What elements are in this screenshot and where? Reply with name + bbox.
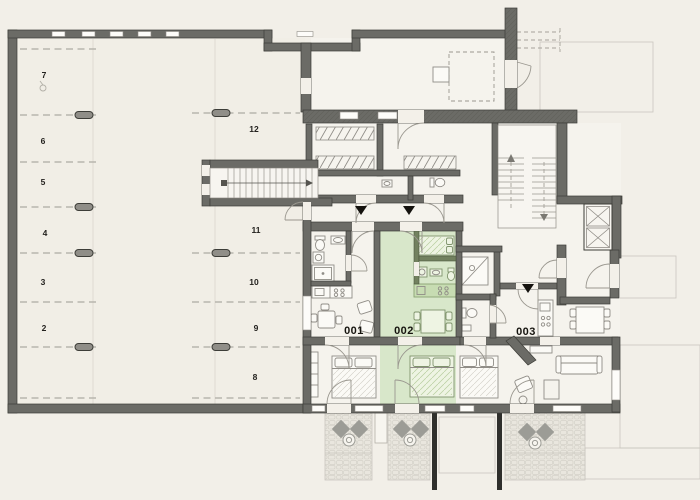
kitchen-counter-icon bbox=[312, 286, 352, 298]
shelf-rack bbox=[316, 127, 374, 140]
toilet-icon bbox=[462, 308, 477, 318]
main-staircase bbox=[210, 168, 318, 198]
single-bed-icon bbox=[418, 236, 454, 255]
parking-spot-7: 7 bbox=[42, 70, 47, 80]
shower-icon bbox=[312, 265, 334, 282]
parking-spot-10: 10 bbox=[249, 277, 259, 287]
wheel-stop bbox=[75, 250, 93, 257]
shelf-rack bbox=[316, 156, 374, 169]
parking-spot-9: 9 bbox=[254, 323, 259, 333]
dining-table-icon bbox=[570, 307, 610, 333]
double-bed-icon bbox=[460, 356, 498, 398]
terrace-002 bbox=[388, 413, 430, 480]
parking-spot-11: 11 bbox=[252, 225, 261, 235]
wheel-stop bbox=[212, 250, 230, 257]
kitchen-counter-icon bbox=[414, 284, 456, 297]
parking-spot-4: 4 bbox=[43, 228, 48, 238]
sink-icon bbox=[430, 269, 442, 276]
wheel-stop bbox=[75, 112, 93, 119]
parking-spot-8: 8 bbox=[253, 372, 258, 382]
double-bed-icon bbox=[410, 356, 454, 397]
terrace-001 bbox=[325, 413, 372, 480]
kitchen-counter-icon bbox=[538, 300, 553, 336]
unit-label-001[interactable]: 001 bbox=[344, 325, 364, 337]
toilet-icon bbox=[447, 268, 454, 280]
sofa-icon bbox=[556, 356, 602, 374]
wheel-stop bbox=[75, 204, 93, 211]
double-bed-icon bbox=[332, 356, 376, 398]
toilet-icon bbox=[430, 178, 445, 187]
parking-spot-12: 12 bbox=[249, 124, 259, 134]
shelf-rack bbox=[404, 156, 456, 169]
wheel-stop bbox=[212, 344, 230, 351]
sink-icon bbox=[331, 236, 345, 244]
parking-spot-6: 6 bbox=[41, 136, 46, 146]
sink-icon bbox=[382, 180, 392, 187]
parking-spot-5: 5 bbox=[41, 177, 46, 187]
terrace-table-icon bbox=[343, 434, 355, 446]
terrace-table-icon bbox=[404, 434, 416, 446]
terrace-table-icon bbox=[529, 437, 541, 449]
elevator-icon bbox=[584, 204, 612, 250]
stairwell bbox=[498, 125, 556, 228]
floor-plan: 7 6 5 4 3 2 12 11 10 9 8 bbox=[0, 0, 700, 500]
unit-label-003[interactable]: 003 bbox=[516, 326, 536, 338]
toilet-icon bbox=[315, 236, 325, 251]
parking-spot-2: 2 bbox=[42, 323, 47, 333]
tv-console-icon bbox=[530, 346, 552, 353]
control-box bbox=[433, 67, 449, 82]
wheel-stop bbox=[75, 344, 93, 351]
terrace-divider-planter bbox=[375, 413, 387, 443]
parking-spot-3: 3 bbox=[41, 277, 46, 287]
shower-icon bbox=[462, 257, 488, 285]
unit-label-002[interactable]: 002 bbox=[394, 325, 414, 337]
washing-machine-icon bbox=[313, 252, 324, 263]
wheel-stop bbox=[212, 110, 230, 117]
sink-icon bbox=[462, 325, 471, 331]
